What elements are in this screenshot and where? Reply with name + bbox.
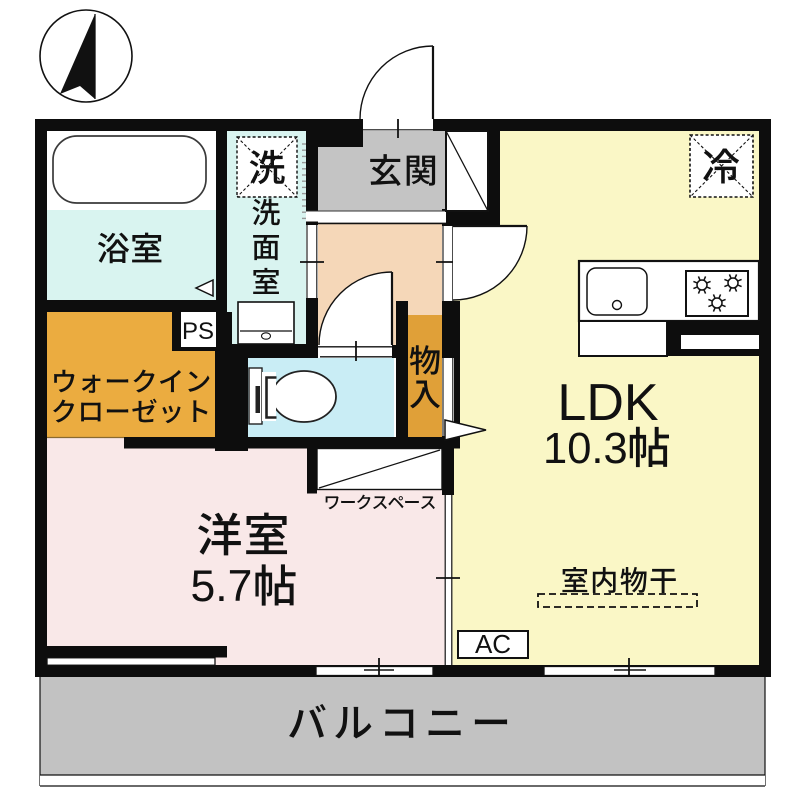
svg-text:10.3: 10.3 <box>543 425 628 473</box>
svg-text:5.7: 5.7 <box>191 562 253 611</box>
svg-text:AC: AC <box>475 629 511 659</box>
svg-text:LDK: LDK <box>557 374 658 432</box>
svg-text:PS: PS <box>182 318 214 345</box>
